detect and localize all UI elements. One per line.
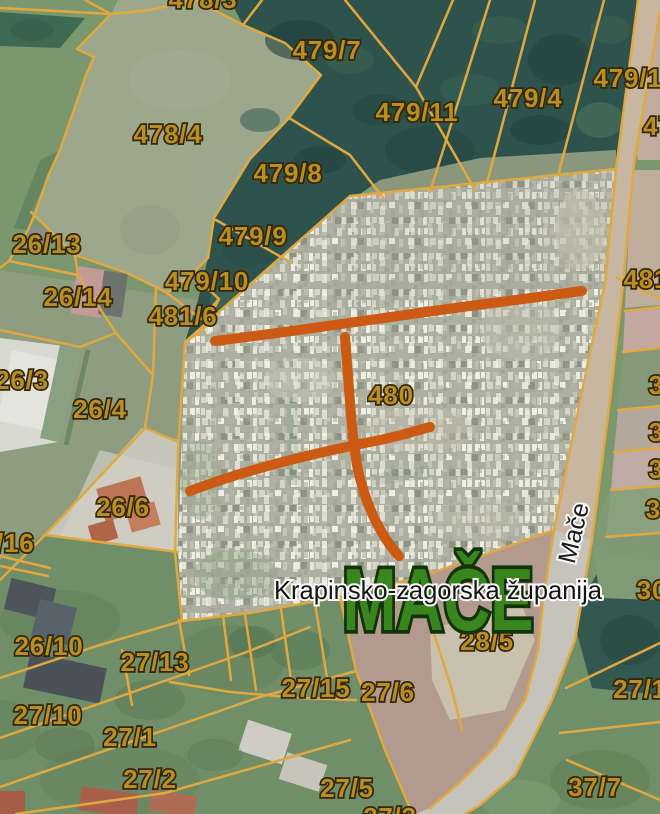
svg-text:479/11: 479/11 [376, 97, 459, 127]
svg-text:26/13: 26/13 [12, 229, 81, 259]
svg-text:26/6: 26/6 [96, 492, 150, 522]
svg-text:479/1: 479/1 [593, 63, 660, 93]
svg-text:30: 30 [637, 575, 660, 605]
svg-text:27/1: 27/1 [103, 722, 157, 752]
svg-text:480: 480 [368, 380, 414, 410]
svg-text:27/1: 27/1 [613, 674, 660, 704]
svg-text:479/9: 479/9 [218, 221, 287, 251]
svg-text:31: 31 [649, 454, 660, 484]
svg-text:481/7: 481/7 [623, 264, 660, 294]
svg-text:27/15: 27/15 [281, 673, 350, 703]
svg-text:27/3: 27/3 [363, 802, 417, 814]
svg-text:Krapinsko-zagorska županija: Krapinsko-zagorska županija [274, 575, 603, 605]
svg-text:479/10: 479/10 [165, 266, 249, 296]
svg-text:479/8: 479/8 [253, 158, 322, 188]
svg-text:27/13: 27/13 [120, 647, 189, 677]
svg-text:27/2: 27/2 [123, 764, 177, 794]
svg-text:37/7: 37/7 [568, 772, 622, 802]
svg-text:478/3: 478/3 [168, 0, 237, 14]
svg-text:26/3: 26/3 [0, 365, 49, 395]
svg-text:26/4: 26/4 [73, 394, 127, 424]
svg-text:478/4: 478/4 [133, 119, 202, 149]
svg-text:30: 30 [646, 494, 660, 524]
svg-text:479/4: 479/4 [493, 83, 562, 113]
svg-text:31: 31 [649, 417, 660, 447]
svg-text:479/7: 479/7 [292, 35, 361, 65]
svg-text:481/6: 481/6 [148, 301, 217, 331]
svg-text:479: 479 [643, 111, 660, 141]
svg-text:26/10: 26/10 [14, 631, 83, 661]
svg-text:27/10: 27/10 [13, 700, 82, 730]
svg-text:27/6: 27/6 [361, 677, 415, 707]
svg-text:26/14: 26/14 [43, 282, 112, 312]
svg-text:26/16: 26/16 [0, 528, 35, 558]
svg-text:31: 31 [649, 370, 660, 400]
svg-text:27/5: 27/5 [320, 773, 374, 803]
